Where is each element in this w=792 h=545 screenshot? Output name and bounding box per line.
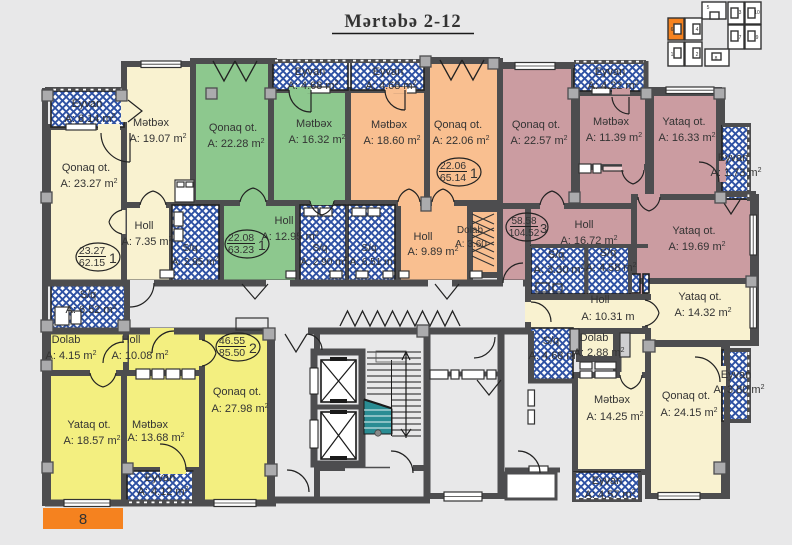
svg-text:85.50: 85.50 (219, 347, 245, 359)
svg-text:9: 9 (756, 35, 759, 41)
svg-text:6: 6 (671, 27, 674, 33)
svg-text:Holl: Holl (414, 231, 433, 243)
svg-text:A: 4.57 m2: A: 4.57 m2 (585, 489, 636, 501)
svg-text:A: 6.51 m2: A: 6.51 m2 (350, 256, 397, 268)
svg-text:A: 12.95 m2: A: 12.95 m2 (261, 231, 318, 243)
svg-text:S/q: S/q (548, 249, 565, 261)
svg-text:A: 3.30 m2: A: 3.30 m2 (534, 264, 585, 276)
svg-text:1: 1 (470, 165, 478, 181)
svg-text:Mətbəx: Mətbəx (593, 116, 630, 128)
svg-text:1: 1 (258, 237, 266, 253)
svg-text:Holl: Holl (575, 219, 594, 231)
svg-text:Yataq ot.: Yataq ot. (662, 116, 705, 128)
svg-text:A: 24.15 m2: A: 24.15 m2 (660, 407, 717, 419)
svg-text:4: 4 (696, 27, 699, 33)
svg-text:63.23: 63.23 (228, 244, 254, 256)
svg-text:A: 2.90 m2: A: 2.90 m2 (301, 256, 348, 268)
svg-text:S/q: S/q (80, 289, 97, 301)
svg-text:Mətbəx: Mətbəx (371, 119, 408, 131)
svg-text:A: 4.68 m2: A: 4.68 m2 (529, 350, 580, 362)
svg-text:A: 10.31 m: A: 10.31 m (581, 311, 634, 323)
svg-text:Mətbəx: Mətbəx (594, 394, 631, 406)
svg-text:A: 7.35 m2: A: 7.35 m2 (122, 236, 173, 248)
svg-text:A: 4.68 m2: A: 4.68 m2 (288, 80, 339, 92)
svg-text:A: 4.15 m2: A: 4.15 m2 (46, 350, 97, 362)
svg-text:S/q: S/q (543, 335, 560, 347)
svg-text:2: 2 (249, 340, 257, 356)
svg-text:A: 9.89 m2: A: 9.89 m2 (408, 246, 459, 258)
svg-text:46.55: 46.55 (219, 335, 245, 347)
svg-text:A: 23.27 m2: A: 23.27 m2 (60, 178, 117, 190)
svg-text:A: 27.98 m2: A: 27.98 m2 (211, 403, 268, 415)
svg-text:Qonaq ot.: Qonaq ot. (209, 122, 257, 134)
svg-text:8: 8 (79, 511, 87, 528)
svg-text:Holl: Holl (591, 294, 610, 306)
svg-text:S/q: S/q (600, 247, 617, 259)
svg-text:3: 3 (540, 221, 547, 236)
svg-text:Eyvan: Eyvan (72, 98, 103, 110)
svg-text:Eyvan: Eyvan (373, 66, 404, 78)
svg-text:104.52: 104.52 (509, 228, 540, 239)
svg-text:22.08: 22.08 (228, 232, 254, 244)
svg-text:Yataq ot.: Yataq ot. (678, 291, 721, 303)
svg-text:A: 14.25 m2: A: 14.25 m2 (586, 411, 643, 423)
svg-text:A: 3.60: A: 3.60 (455, 239, 487, 250)
svg-text:10: 10 (754, 10, 760, 16)
svg-text:22.06: 22.06 (440, 160, 466, 172)
svg-text:Eyvan: Eyvan (595, 66, 626, 78)
svg-text:A: 11.39 m2: A: 11.39 m2 (586, 132, 642, 144)
svg-text:A: 13.68 m2: A: 13.68 m2 (127, 432, 184, 444)
svg-text:Dolab: Dolab (52, 334, 81, 346)
svg-text:A: 19.07 m2: A: 19.07 m2 (129, 133, 186, 145)
svg-text:Holl: Holl (135, 220, 154, 232)
svg-text:A: 2.95 m2: A: 2.95 m2 (172, 256, 219, 268)
svg-text:A: 16.32 m2: A: 16.32 m2 (288, 134, 345, 146)
svg-text:Dolab: Dolab (580, 332, 609, 344)
svg-text:A: 18.57 m2: A: 18.57 m2 (63, 435, 120, 447)
svg-text:A: 14.32 m2: A: 14.32 m2 (674, 307, 731, 319)
svg-text:A: 3.80 m2: A: 3.80 m2 (714, 384, 765, 396)
svg-text:A: 22.28 m2: A: 22.28 m2 (207, 138, 264, 150)
svg-text:A: 4.22 m2: A: 4.22 m2 (588, 80, 639, 92)
svg-text:Dolab: Dolab (457, 225, 484, 236)
svg-text:A: 16.33 m2: A: 16.33 m2 (658, 132, 715, 144)
svg-text:8: 8 (715, 56, 718, 62)
svg-text:Qonaq ot.: Qonaq ot. (662, 390, 710, 402)
svg-text:Qonaq ot.: Qonaq ot. (434, 119, 482, 131)
svg-text:A: 1.73 m2: A: 1.73 m2 (711, 167, 762, 179)
svg-text:Mətbəx: Mətbəx (132, 419, 169, 431)
svg-text:A: 4.12 m2: A: 4.12 m2 (138, 486, 189, 498)
svg-text:A: 16.72 m2: A: 16.72 m2 (560, 235, 617, 247)
svg-text:1: 1 (671, 52, 674, 58)
svg-text:Eyvan: Eyvan (145, 472, 176, 484)
svg-text:3: 3 (739, 10, 742, 16)
svg-text:2: 2 (696, 52, 699, 58)
svg-text:S/q: S/q (361, 243, 376, 254)
svg-text:Eyvan: Eyvan (592, 475, 623, 487)
svg-text:Mətbəx: Mətbəx (133, 117, 170, 129)
svg-text:A: 6.14 m2: A: 6.14 m2 (65, 113, 116, 125)
svg-text:A: 10.08 m2: A: 10.08 m2 (111, 350, 168, 362)
svg-text:A: 4.58 m2: A: 4.58 m2 (586, 262, 637, 274)
svg-text:62.15: 62.15 (79, 257, 105, 269)
svg-text:A: 19.69 m2: A: 19.69 m2 (668, 241, 725, 253)
svg-text:Yataq ot.: Yataq ot. (67, 419, 110, 431)
svg-text:Holl: Holl (275, 215, 294, 227)
svg-text:Eyvan: Eyvan (295, 66, 326, 78)
svg-text:S/q: S/q (182, 243, 197, 254)
svg-text:58.58: 58.58 (511, 216, 536, 227)
svg-text:5: 5 (707, 5, 710, 11)
svg-text:Qonaq ot.: Qonaq ot. (62, 162, 110, 174)
svg-text:Qonaq ot.: Qonaq ot. (512, 119, 560, 131)
svg-text:65.14: 65.14 (440, 172, 466, 184)
svg-text:23.27: 23.27 (79, 245, 105, 257)
svg-text:Yataq ot.: Yataq ot. (672, 225, 715, 237)
svg-text:A: 22.06 m2: A: 22.06 m2 (432, 135, 489, 147)
svg-text:Mətbəx: Mətbəx (296, 118, 333, 130)
svg-text:S/q: S/q (312, 243, 327, 254)
svg-text:Mərtəbə 2-12: Mərtəbə 2-12 (344, 12, 461, 32)
svg-text:Eyvan: Eyvan (718, 152, 749, 164)
svg-text:A: 18.60 m2: A: 18.60 m2 (363, 135, 420, 147)
svg-text:1: 1 (109, 250, 117, 266)
svg-text:Holl: Holl (122, 334, 141, 346)
svg-text:A: 6.52 m2: A: 6.52 m2 (66, 304, 117, 316)
svg-text:A: 22.57 m2: A: 22.57 m2 (510, 135, 567, 147)
svg-text:A: 2.88 m2: A: 2.88 m2 (574, 347, 625, 359)
svg-text:7: 7 (739, 35, 742, 41)
svg-text:Eyvan: Eyvan (721, 369, 752, 381)
svg-text:A: 4.68 m2: A: 4.68 m2 (366, 80, 417, 92)
svg-text:Qonaq ot.: Qonaq ot. (213, 386, 261, 398)
